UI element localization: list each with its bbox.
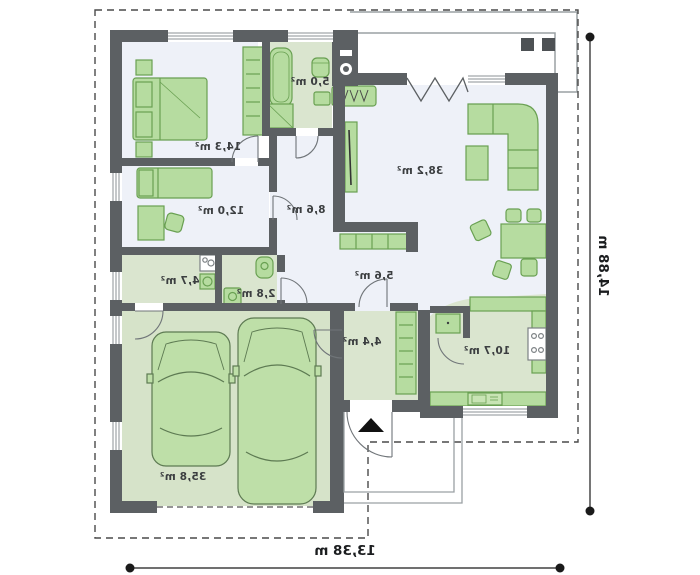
window xyxy=(468,73,505,85)
dimension-height-label: 14,88 m xyxy=(595,235,611,296)
window xyxy=(110,316,122,344)
window xyxy=(288,30,333,42)
window xyxy=(168,30,233,42)
dimension-line-horizontal xyxy=(126,564,565,573)
room-label-living-room: 38,2 m² xyxy=(397,165,444,177)
toilet xyxy=(312,58,329,77)
garage-door xyxy=(157,506,313,513)
terrace-post-icon xyxy=(521,38,534,51)
desk-chair xyxy=(164,212,185,233)
car xyxy=(147,332,235,466)
front-door-arc xyxy=(347,412,392,457)
dimension-width-label: 13,38 m xyxy=(314,543,375,559)
entrance-arrow-icon xyxy=(358,418,384,432)
room-label-kitchen: 10,7 m² xyxy=(464,345,511,357)
nightstand xyxy=(136,60,152,75)
wardrobe xyxy=(243,47,263,135)
stove xyxy=(528,328,546,360)
toilet xyxy=(256,257,273,278)
flue-vent-icon xyxy=(340,50,352,56)
window xyxy=(110,173,122,201)
window xyxy=(110,422,122,450)
double-bed xyxy=(133,78,207,140)
dining-chair xyxy=(527,209,541,222)
terrace-post-icon xyxy=(542,38,555,51)
single-bed xyxy=(137,168,212,198)
entry-wardrobe xyxy=(396,312,416,394)
room-label-entry: 4,4 m² xyxy=(343,336,382,348)
room-label-utility: 4,7 m² xyxy=(161,275,200,287)
room-label-hall: 8,6 m² xyxy=(287,204,326,216)
pantry-cabinet xyxy=(436,314,460,333)
desk xyxy=(138,206,164,240)
floor-plan-canvas: 14,3 m² 5,0 m² 38,2 m² 12,0 m² 8,6 m² 4,… xyxy=(0,0,700,575)
kitchen-sink xyxy=(468,393,502,405)
front-door-opening xyxy=(350,400,392,412)
washing-machine xyxy=(200,255,216,271)
kitchen-counter xyxy=(470,297,546,311)
boiler xyxy=(200,274,215,289)
car xyxy=(233,318,321,504)
room-label-bedroom-1: 14,3 m² xyxy=(195,141,242,153)
sideboard xyxy=(340,234,408,249)
coffee-table xyxy=(466,146,488,180)
dining-chair xyxy=(521,259,537,276)
shower xyxy=(268,104,293,128)
room-label-bathroom: 5,0 m² xyxy=(291,76,330,88)
walkway-outline xyxy=(344,412,462,503)
dimension-line-vertical xyxy=(586,33,595,516)
bathtub xyxy=(270,48,292,106)
terrace xyxy=(350,33,555,75)
tv-bench xyxy=(345,122,357,192)
room-label-corridor: 5,6 m² xyxy=(355,270,394,282)
room-label-wc: 2,8 m² xyxy=(237,288,276,300)
nightstand xyxy=(136,142,152,157)
room-label-garage: 35,8 m² xyxy=(160,471,207,483)
chimney xyxy=(332,30,358,86)
room-label-bedroom-2: 12,0 m² xyxy=(198,205,245,217)
dining-chair xyxy=(506,209,521,222)
window xyxy=(463,406,527,418)
dining-table xyxy=(501,224,546,258)
washbasin xyxy=(314,92,330,105)
window xyxy=(110,272,122,300)
